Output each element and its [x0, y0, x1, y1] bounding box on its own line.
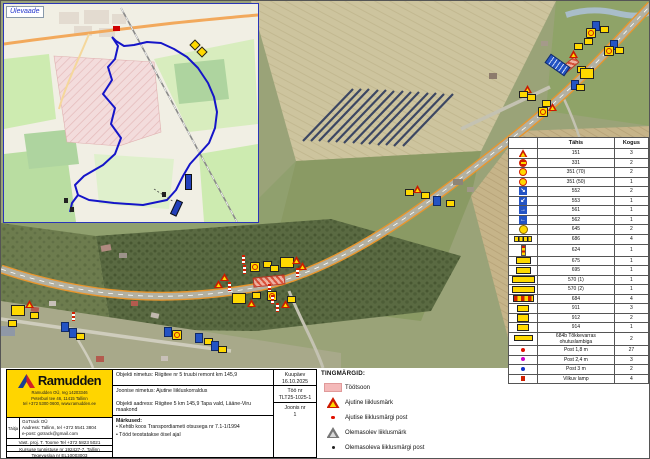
sign-table-row: 351 (50) 1: [509, 177, 649, 187]
legend-item-label: Töötsoon: [345, 385, 370, 391]
sign-code: 624: [538, 244, 615, 256]
ramudden-logo-icon: [18, 374, 35, 388]
ta-plan-sheet: Ülevaade Tähis Kogus 151 3 331 2: [0, 0, 650, 459]
sign-count: 3: [614, 149, 648, 159]
sign-code: 351 (50): [538, 177, 615, 187]
sign-count: 2: [614, 313, 648, 323]
sign-table-row: 914 1: [509, 323, 649, 333]
inset-street-map: [4, 4, 258, 222]
sign-count: 1: [614, 196, 648, 206]
work-number-label: Töö nr: [275, 388, 315, 395]
legend-item-icon: [331, 416, 335, 420]
drawing-number-value: 1: [275, 412, 315, 419]
sign-table-row: → 561 1: [509, 206, 649, 216]
sign-code: 675: [538, 256, 615, 266]
sign-icon: [521, 376, 526, 381]
sign-icon: [516, 267, 531, 274]
sign-table-row: 911 3: [509, 304, 649, 314]
sign-table-row: Post 3 m 2: [509, 365, 649, 375]
work-number-cell: Töö nr TLT25-1025-1: [274, 386, 316, 403]
sign-table-row: 351 (70) 2: [509, 168, 649, 178]
sign-icon: [521, 245, 526, 256]
sign-table-row: ↙ 553 1: [509, 196, 649, 206]
sign-code: 561: [538, 206, 615, 216]
title-block: Ramudden Ramudden OÜ, reg 14203346Peterb…: [6, 369, 317, 458]
type-column-header: Tähis: [538, 138, 615, 149]
sign-count: 4: [614, 294, 648, 304]
contractor-lines: GoTrack OÜAadress: Tallinn, tel +372 554…: [20, 418, 112, 438]
legend-item-icon: [327, 397, 340, 408]
sign-table-row: 695 1: [509, 266, 649, 276]
sign-code: 914: [538, 323, 615, 333]
sign-code: Post 3 m: [538, 365, 615, 375]
sign-code: 684b Tõkkevarras ohutuslambiga: [538, 332, 615, 346]
drawing-and-address: Joonise nimetus: Ajutine liikluskorraldu…: [113, 386, 273, 416]
legend-item-label: Olemasolev liiklusmärk: [345, 430, 406, 436]
company-address-line: tel +372 5300 0600, www.ramudden.ee: [7, 401, 112, 407]
legend-item: Ajutise liiklusmärgi post: [321, 410, 496, 425]
sign-count: 1: [614, 206, 648, 216]
sign-code: 570 (1): [538, 275, 615, 285]
sign-table-row: 570 (2) 1: [509, 285, 649, 295]
sign-table-row: 684b Tõkkevarras ohutuslambiga 2: [509, 332, 649, 346]
company-address: Ramudden OÜ, reg 14203346Peterburi tee 4…: [7, 390, 112, 407]
legend-item: Olemasoleva liiklusmärgi post: [321, 440, 496, 455]
sign-icon: [519, 149, 528, 157]
sign-icon: [517, 324, 529, 332]
sign-table-row: 570 (1) 1: [509, 275, 649, 285]
notes-cell: Märkused: Kehtib koos Transpordiameti ot…: [113, 416, 273, 457]
drawing-name: Joonise nimetus: Ajutine liikluskorraldu…: [116, 388, 270, 394]
sign-code: 553: [538, 196, 615, 206]
work-number-value: TLT25-1025-1: [275, 395, 315, 402]
sign-icon: [514, 335, 533, 341]
sign-table-row: 624 1: [509, 244, 649, 256]
icon-column-header: [509, 138, 538, 149]
sign-icon: [519, 159, 527, 167]
contractor-cell: Täitja GoTrack OÜAadress: Tallinn, tel +…: [7, 418, 113, 439]
sign-table-row: Post 2,4 m 3: [509, 355, 649, 365]
sign-table-row: 686 4: [509, 235, 649, 245]
legend-item-icon: [327, 427, 340, 438]
legend-item-icon: [332, 446, 335, 449]
sign-count: 2: [614, 332, 648, 346]
sign-code: 684: [538, 294, 615, 304]
symbols-legend: TINGMÄRGID: Töötsoon Ajutine liiklusmärk…: [321, 370, 496, 458]
sign-count: 1: [614, 215, 648, 225]
sign-count: 1: [614, 266, 648, 276]
legend-item: Töötsoon: [321, 380, 496, 395]
sign-count: 1: [614, 244, 648, 256]
drawing-number-cell: Joonis nr 1: [274, 403, 316, 418]
sign-count: 1: [614, 177, 648, 187]
sign-icon: [514, 236, 532, 243]
legend-item: Ajutine liiklusmärk: [321, 395, 496, 410]
sign-table-row: ← 562 1: [509, 215, 649, 225]
sign-icon: [521, 348, 525, 352]
sign-count: 3: [614, 355, 648, 365]
sign-count: 2: [614, 187, 648, 197]
sign-count: 4: [614, 374, 648, 384]
sign-icon: ↙: [519, 197, 527, 205]
sign-table-row: Vilkuv lamp 4: [509, 374, 649, 384]
sign-icon: [521, 357, 525, 361]
sign-icon: [519, 225, 528, 234]
date-cell: Kuupäev 16.10.2025: [274, 370, 316, 386]
sign-code: 570 (2): [538, 285, 615, 295]
sign-table-row: 912 2: [509, 313, 649, 323]
sign-code: 645: [538, 225, 615, 235]
sign-code: 695: [538, 266, 615, 276]
legend-item-label: Ajutise liiklusmärgi post: [345, 415, 407, 421]
sign-count: 4: [614, 235, 648, 245]
legend-item: Olemasolev liiklusmärk: [321, 425, 496, 440]
sign-icon: ↘: [519, 187, 527, 195]
legend-item-icon: [324, 383, 342, 392]
note-line: Tööd teostatakse öisel ajal: [116, 432, 270, 440]
date-label: Kuupäev: [275, 372, 315, 379]
restricted-area: [54, 56, 161, 146]
sign-count: 2: [614, 225, 648, 235]
sign-icon: [512, 276, 535, 283]
sign-code: 686: [538, 235, 615, 245]
sign-icon: ←: [519, 216, 527, 224]
sign-count: 1: [614, 275, 648, 285]
overview-label: Ülevaade: [6, 6, 44, 18]
sign-icon: [519, 178, 527, 186]
sign-icon: [519, 168, 527, 176]
drawing-number-label: Joonis nr: [275, 405, 315, 412]
sign-table-row: ↘ 552 2: [509, 187, 649, 197]
sign-icon: [521, 367, 525, 371]
responsible-person: Vast. proj. T. Toome Tel +372 5823 5021: [7, 439, 113, 446]
legend-item-label: Ajutine liiklusmärk: [345, 400, 393, 406]
sign-code: 331: [538, 158, 615, 168]
contractor-label: Täitja: [7, 418, 20, 438]
sign-count: 1: [614, 285, 648, 295]
sign-table-row: 645 2: [509, 225, 649, 235]
sign-count: 1: [614, 256, 648, 266]
sign-code: 562: [538, 215, 615, 225]
object-address: Objekti aadress: Riigitee 5 km 145,9 Tap…: [116, 401, 270, 413]
sign-table-row: Post 1,8 m 27: [509, 346, 649, 356]
sign-table-row: 151 3: [509, 149, 649, 159]
sign-table-row: 331 2: [509, 158, 649, 168]
sign-icon: [513, 295, 534, 302]
sign-count: 2: [614, 365, 648, 375]
sign-icon: →: [519, 206, 527, 214]
symbols-legend-title: TINGMÄRGID:: [321, 370, 496, 377]
sign-code: Vilkuv lamp: [538, 374, 615, 384]
legend-item-label: Olemasoleva liiklusmärgi post: [345, 445, 424, 451]
note-line: Kehtib koos Transpordiameti otsusega nr …: [116, 424, 270, 432]
qty-column-header: Kogus: [614, 138, 648, 149]
company-box: Ramudden Ramudden OÜ, reg 14203346Peterb…: [7, 370, 113, 418]
sign-icon: [516, 257, 531, 264]
sign-count: 27: [614, 346, 648, 356]
sign-code: Post 2,4 m: [538, 355, 615, 365]
sign-icon: [512, 286, 535, 293]
contractor-line: e-post: gotrack@gmail.com: [22, 431, 110, 437]
object-name: Objekti nimetus: Riigitee nr 5 truubi re…: [113, 370, 273, 386]
sign-icon: [517, 305, 529, 313]
sign-icon: [517, 314, 529, 322]
sign-code: 151: [538, 149, 615, 159]
sign-code: Post 1,8 m: [538, 346, 615, 356]
licence-number: Tegevusloa nr EL10003003: [7, 452, 113, 459]
sign-count: 2: [614, 168, 648, 178]
sign-code: 911: [538, 304, 615, 314]
sign-count: 2: [614, 158, 648, 168]
meta-column: Kuupäev 16.10.2025 Töö nr TLT25-1025-1 J…: [273, 370, 316, 457]
sign-code: 552: [538, 187, 615, 197]
sign-table-row: 675 1: [509, 256, 649, 266]
sign-table-row: 684 4: [509, 294, 649, 304]
sign-count: 3: [614, 304, 648, 314]
sign-table-header: Tähis Kogus: [509, 138, 649, 149]
sign-code: 912: [538, 313, 615, 323]
sign-quantity-table: Tähis Kogus 151 3 331 2 351 (70) 2: [508, 137, 649, 384]
sign-code: 351 (70): [538, 168, 615, 178]
inset-map: Ülevaade: [3, 3, 259, 223]
company-name: Ramudden: [38, 373, 101, 388]
sign-count: 1: [614, 323, 648, 333]
